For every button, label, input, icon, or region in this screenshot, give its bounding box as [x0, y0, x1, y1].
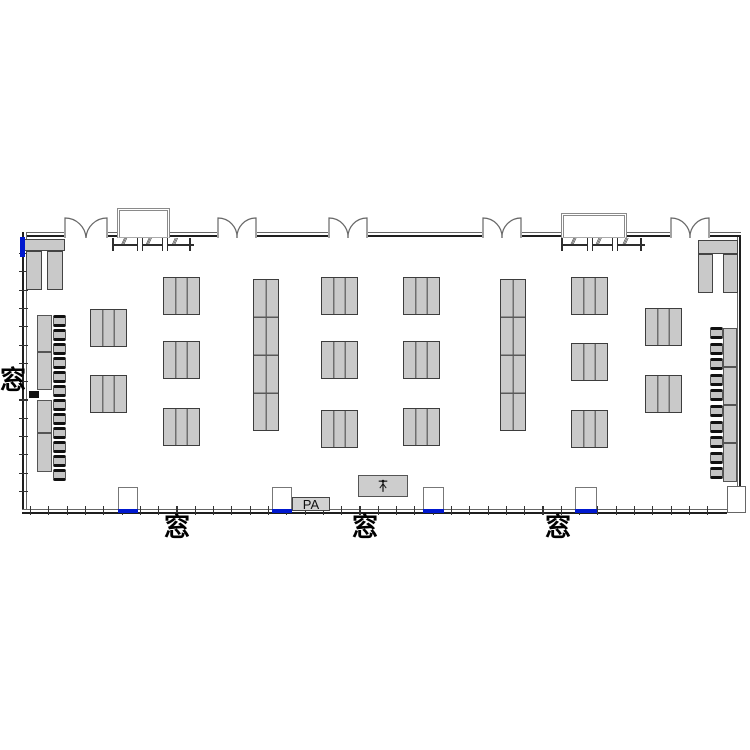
- window-tick: [689, 506, 690, 515]
- mic-stand-icon: [377, 479, 389, 494]
- counter-segment-left: [37, 433, 52, 472]
- window-tick: [488, 506, 489, 515]
- window-tick: [396, 506, 397, 515]
- double-door: [482, 216, 522, 238]
- corner-box: [727, 486, 746, 513]
- table: [163, 408, 200, 446]
- coat-rack-hatch: ///: [173, 237, 177, 246]
- coat-rack: /////////: [112, 238, 194, 252]
- chair-left: [53, 399, 66, 411]
- coat-rack-post: [587, 238, 593, 251]
- table: [321, 341, 358, 379]
- window-tick: [19, 473, 28, 474]
- double-door: [64, 216, 108, 238]
- chair-right: [710, 405, 723, 417]
- window-label-bottom-1: 窓: [164, 515, 190, 541]
- window-label-bottom-3: 窓: [545, 515, 571, 541]
- corner-bench-part: [723, 254, 738, 293]
- window-tick: [451, 506, 452, 515]
- corner-bench-part: [47, 251, 63, 290]
- table: [90, 375, 127, 413]
- table: [645, 375, 682, 413]
- chair-right: [710, 358, 723, 370]
- chair-left: [53, 371, 66, 383]
- window-tick: [85, 506, 86, 515]
- table: [321, 410, 358, 448]
- window-tick: [542, 506, 543, 515]
- table: [571, 410, 608, 448]
- coat-rack: /////////: [561, 238, 645, 252]
- window-blue-marker: [118, 509, 138, 513]
- window-label-left: 窓: [0, 368, 26, 394]
- corner-bench-part: [698, 254, 713, 293]
- wall: [368, 232, 482, 237]
- pillar: [423, 487, 444, 510]
- pa-label: PA: [303, 497, 319, 512]
- chair-left: [53, 329, 66, 341]
- table: [163, 341, 200, 379]
- counter-segment-right: [723, 405, 737, 443]
- chair-left: [53, 343, 66, 355]
- window-tick: [158, 506, 159, 515]
- window-blue-marker: [272, 509, 292, 513]
- coat-rack-hatch: ///: [122, 237, 126, 246]
- window-tick: [652, 506, 653, 515]
- coat-rack-hatch: ///: [623, 237, 627, 246]
- window-tick: [506, 506, 507, 515]
- chair-right: [710, 343, 723, 355]
- counter-segment-right: [723, 367, 737, 405]
- floor-plan: ////////////////// PA 窓 窓 窓 窓: [0, 0, 750, 750]
- table: [571, 343, 608, 381]
- window-tick: [341, 506, 342, 515]
- table: [403, 408, 440, 446]
- stage-area: [358, 475, 408, 497]
- coat-rack-post: [640, 238, 642, 251]
- corner-bench-part: [698, 240, 738, 254]
- coat-rack-post: [112, 238, 114, 251]
- corner-bench-part: [24, 239, 65, 251]
- chair-right: [710, 467, 723, 479]
- window-tick: [250, 506, 251, 515]
- table: [90, 309, 127, 347]
- window-tick: [19, 399, 28, 400]
- window-blue-marker: [20, 237, 25, 257]
- coat-rack-hatch: ///: [596, 237, 600, 246]
- window-label-bottom-2: 窓: [352, 515, 378, 541]
- coat-rack-hatch: ///: [571, 237, 575, 246]
- window-tick: [469, 506, 470, 515]
- window-tick: [195, 506, 196, 515]
- wall: [257, 232, 328, 237]
- chair-left: [53, 427, 66, 439]
- table: [645, 308, 682, 346]
- wall: [22, 232, 64, 237]
- window-tick: [231, 506, 232, 515]
- counter-segment-left: [37, 400, 52, 433]
- window-blue-marker: [575, 509, 597, 513]
- window-tick: [19, 491, 28, 492]
- chair-right: [710, 327, 723, 339]
- pillar: [272, 487, 292, 510]
- double-door: [328, 216, 368, 238]
- long-table: [500, 279, 526, 431]
- window-tick: [19, 418, 28, 419]
- table: [321, 277, 358, 315]
- chair-left: [53, 469, 66, 481]
- coat-rack-post: [162, 238, 168, 251]
- double-door: [217, 216, 257, 238]
- chair-left: [53, 413, 66, 425]
- window-tick: [19, 436, 28, 437]
- counter-segment-left: [37, 352, 52, 390]
- chair-right: [710, 436, 723, 448]
- pillar: [118, 487, 138, 510]
- window-tick: [19, 345, 28, 346]
- counter-segment-left: [37, 315, 52, 352]
- window-tick: [19, 454, 28, 455]
- chair-left: [53, 315, 66, 327]
- window-tick: [48, 506, 49, 515]
- entrance-alcove: [117, 208, 170, 238]
- window-tick: [634, 506, 635, 515]
- coat-rack-post: [612, 238, 618, 251]
- window-tick: [597, 506, 598, 515]
- chair-right: [710, 374, 723, 386]
- chair-right: [710, 421, 723, 433]
- table: [403, 277, 440, 315]
- window-blue-marker: [423, 509, 444, 513]
- coat-rack-hatch: ///: [146, 237, 150, 246]
- window-tick: [616, 506, 617, 515]
- coat-rack-post: [561, 238, 563, 251]
- window-tick: [414, 506, 415, 515]
- entrance-alcove: [561, 213, 627, 238]
- table: [571, 277, 608, 315]
- chair-right: [710, 389, 723, 401]
- window-tick: [524, 506, 525, 515]
- chair-left: [53, 385, 66, 397]
- window-tick: [30, 506, 31, 515]
- equipment-mark: [29, 391, 39, 398]
- chair-left: [53, 357, 66, 369]
- window-tick: [67, 506, 68, 515]
- double-door: [670, 216, 710, 238]
- coat-rack-post: [137, 238, 143, 251]
- table: [403, 341, 440, 379]
- counter-segment-right: [723, 328, 737, 367]
- pillar: [575, 487, 597, 510]
- window-tick: [707, 506, 708, 515]
- window-tick: [140, 506, 141, 515]
- coat-rack-post: [189, 238, 191, 251]
- pa-equipment-box: PA: [292, 497, 330, 511]
- window-tick: [19, 326, 28, 327]
- corner-bench-part: [26, 251, 42, 290]
- long-table: [253, 279, 279, 431]
- chair-left: [53, 441, 66, 453]
- window-tick: [19, 308, 28, 309]
- window-tick: [671, 506, 672, 515]
- chair-right: [710, 452, 723, 464]
- window-tick: [103, 506, 104, 515]
- table: [163, 277, 200, 315]
- window-tick: [268, 506, 269, 515]
- window-tick: [19, 363, 28, 364]
- counter-segment-right: [723, 443, 737, 482]
- window-tick: [213, 506, 214, 515]
- chair-left: [53, 455, 66, 467]
